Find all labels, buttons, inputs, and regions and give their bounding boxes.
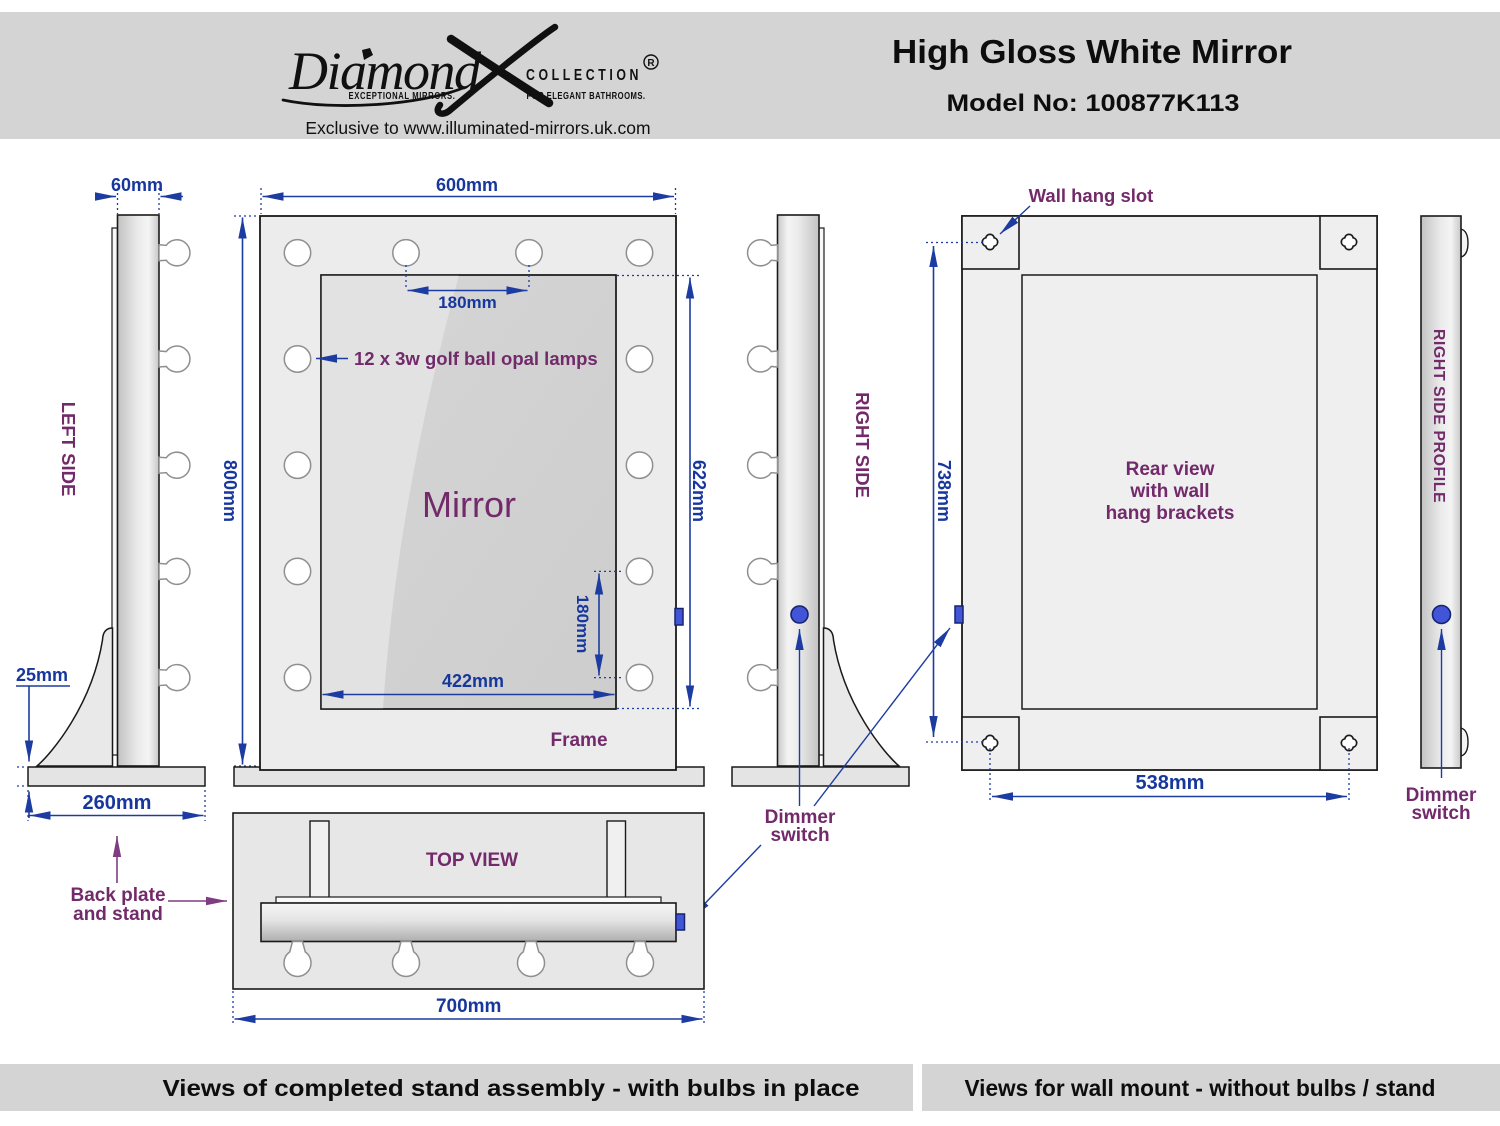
svg-text:800mm: 800mm	[220, 460, 240, 522]
svg-text:and stand: and stand	[73, 904, 163, 925]
svg-text:538mm: 538mm	[1136, 772, 1205, 794]
svg-text:COLLECTION: COLLECTION	[526, 67, 642, 84]
svg-text:switch: switch	[1411, 803, 1470, 824]
svg-text:422mm: 422mm	[442, 671, 504, 691]
svg-text:25mm: 25mm	[16, 665, 68, 685]
svg-text:180mm: 180mm	[438, 293, 497, 312]
svg-text:60mm: 60mm	[111, 175, 163, 195]
svg-text:LEFT SIDE: LEFT SIDE	[58, 402, 79, 497]
svg-text:EXCEPTIONAL MIRRORS.: EXCEPTIONAL MIRRORS.	[349, 91, 456, 102]
svg-text:R: R	[647, 58, 655, 69]
svg-text:622mm: 622mm	[689, 460, 709, 522]
svg-text:Back plate: Back plate	[70, 885, 165, 906]
svg-text:260mm: 260mm	[83, 792, 152, 814]
svg-text:RIGHT SIDE: RIGHT SIDE	[852, 392, 873, 498]
svg-text:Frame: Frame	[550, 730, 607, 751]
svg-text:FOR ELEGANT BATHROOMS.: FOR ELEGANT BATHROOMS.	[527, 91, 646, 102]
svg-text:with wall: with wall	[1129, 481, 1209, 502]
svg-text:600mm: 600mm	[436, 175, 498, 195]
svg-text:Model No: 100877K113: Model No: 100877K113	[947, 90, 1240, 117]
svg-text:Mirror: Mirror	[422, 484, 516, 525]
svg-text:Views for wall mount - without: Views for wall mount - without bulbs / s…	[965, 1075, 1436, 1101]
svg-text:switch: switch	[770, 825, 829, 846]
svg-text:RIGHT SIDE PROFILE: RIGHT SIDE PROFILE	[1430, 329, 1447, 503]
svg-text:Views of completed stand assem: Views of completed stand assembly - with…	[163, 1075, 860, 1101]
svg-text:Exclusive to www.illuminated-m: Exclusive to www.illuminated-mirrors.uk.…	[305, 118, 650, 138]
svg-text:738mm: 738mm	[934, 460, 954, 522]
svg-text:TOP VIEW: TOP VIEW	[426, 850, 518, 871]
svg-text:High Gloss White Mirror: High Gloss White Mirror	[892, 33, 1292, 70]
svg-text:Rear view: Rear view	[1126, 459, 1215, 480]
svg-text:Wall hang slot: Wall hang slot	[1029, 185, 1154, 206]
svg-text:12 x 3w golf ball opal lamps: 12 x 3w golf ball opal lamps	[354, 348, 598, 369]
svg-text:180mm: 180mm	[573, 595, 592, 654]
svg-text:700mm: 700mm	[436, 996, 502, 1017]
svg-text:hang brackets: hang brackets	[1106, 503, 1235, 524]
